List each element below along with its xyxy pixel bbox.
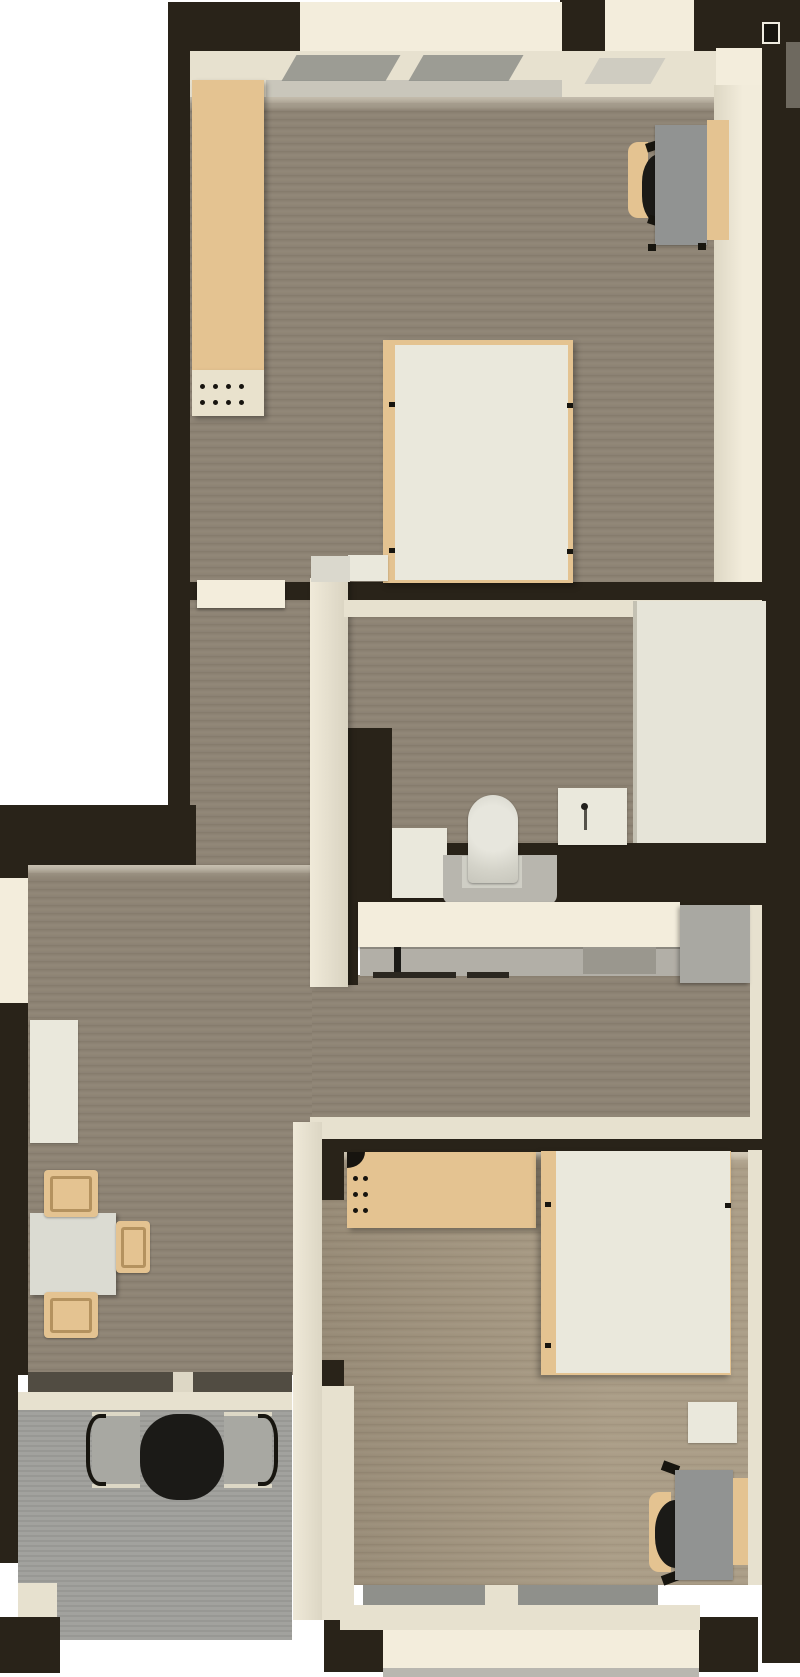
kitchen-counter [358, 902, 680, 947]
right-exterior-wall [762, 0, 800, 1663]
top-wall-middle-segment [560, 0, 607, 53]
wardrobe [347, 1152, 536, 1228]
dining-chair [116, 1221, 150, 1273]
bedroom-top-wall-glow [190, 95, 714, 111]
balcony-door-glazing [28, 1372, 292, 1392]
nightstand [348, 555, 388, 581]
south-outer-gray-strip [383, 1668, 699, 1677]
north-window-left [300, 2, 562, 52]
bed-mattress [556, 1151, 730, 1373]
balcony-door-mullion [173, 1372, 193, 1392]
kitchen-plinth-shadow [373, 972, 456, 978]
balcony-chair-back [86, 1414, 106, 1486]
bed-frame-fitting [545, 1202, 551, 1207]
desk-side-panel [707, 120, 729, 240]
door-icon [762, 22, 780, 44]
kitchen-plinth-shadow [467, 972, 509, 978]
sink-faucet [584, 808, 587, 830]
bedroom-bottom-east-wall-face [748, 1150, 762, 1585]
dresser [311, 556, 350, 582]
bed-frame-fitting [725, 1203, 731, 1208]
desk-side-panel [733, 1478, 748, 1565]
south-outer-wall-band [383, 1630, 699, 1670]
window-glass-pane [408, 55, 523, 81]
desk-leg [648, 244, 656, 251]
bed-frame-fitting [545, 1343, 551, 1348]
window-glass-pane [281, 55, 400, 81]
wardrobe-base-drawers [192, 370, 264, 416]
desk [675, 1470, 733, 1580]
bedroom-bottom-west-wall [293, 1122, 322, 1620]
nightstand [688, 1402, 737, 1443]
balcony-chair [92, 1412, 140, 1488]
living-room-west-window [0, 878, 28, 1003]
hall-bathroom-partition [310, 578, 348, 987]
balcony-chair-back [258, 1414, 278, 1486]
balcony-left-wall [0, 1375, 18, 1563]
kitchen-east-wall-face [750, 905, 762, 1135]
left-wall-upper [168, 5, 190, 805]
bed-mattress [395, 345, 568, 580]
bedroom-bottom-west-wall-lower [322, 1386, 354, 1620]
window-sill-shadow-strip [266, 80, 562, 97]
balcony-door-frame [18, 1392, 292, 1410]
kitchen-cabinet-divider [394, 947, 401, 974]
dining-table [30, 1213, 116, 1295]
wardrobe [192, 80, 264, 370]
east-wall-outer-sliver [786, 42, 800, 108]
sink-faucet-head [581, 803, 588, 810]
sideboard [30, 1020, 78, 1143]
kitchen-floor [312, 975, 762, 1122]
balcony-corner-block [0, 1617, 60, 1673]
living-room-wall-glow [28, 865, 312, 877]
kitchen-sink-unit [583, 947, 656, 974]
floor-plan-render [0, 0, 800, 1677]
north-window-right [605, 0, 694, 52]
balcony-round-table [140, 1414, 224, 1500]
balcony-chair [224, 1412, 272, 1488]
bathroom-sink [558, 788, 627, 845]
washing-machine [392, 828, 447, 898]
shower-enclosure [633, 601, 766, 843]
bed-frame-fitting [389, 548, 395, 553]
desk-leg [698, 243, 706, 250]
south-wall-corner-right [699, 1617, 758, 1672]
dining-chair [44, 1292, 98, 1338]
south-window-sill [340, 1605, 700, 1630]
bed-frame-fitting [567, 403, 573, 408]
toilet [468, 795, 518, 883]
bed-frame-fitting [567, 549, 573, 554]
bedroom-top-door [197, 580, 285, 608]
left-wall-step [0, 805, 196, 865]
fridge [680, 905, 750, 983]
kitchen-bedroom-wall-top [310, 1117, 762, 1139]
dining-chair [44, 1170, 98, 1217]
desk [655, 125, 707, 245]
hallway-floor [190, 600, 310, 865]
balcony-end-wall [18, 1583, 57, 1617]
wardrobe-corner-shadow [347, 1152, 365, 1168]
bed-frame-fitting [389, 402, 395, 407]
